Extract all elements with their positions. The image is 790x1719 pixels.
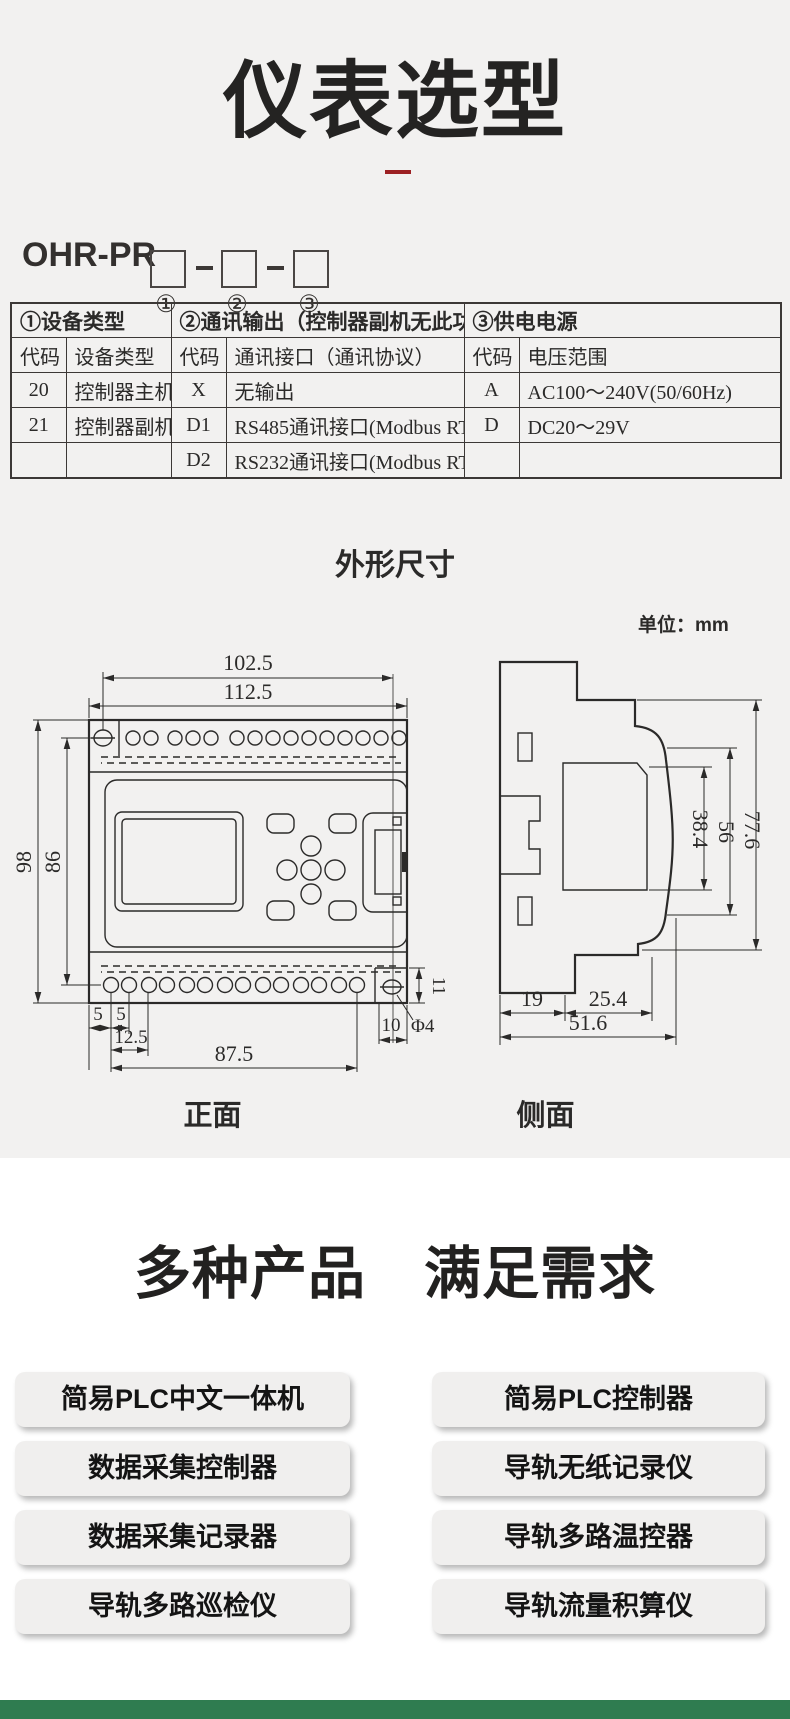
col-header: 代码	[11, 338, 66, 373]
rail-clip-top	[518, 733, 532, 761]
col-header: 代码	[171, 338, 226, 373]
dim-5a: 5	[93, 1004, 103, 1025]
cell-power-code: D	[464, 408, 519, 443]
table-row: D2 RS232通讯接口(Modbus RTU)	[11, 443, 781, 479]
group-title-device: ①设备类型	[11, 303, 171, 338]
product-button-data-acquisition-recorder[interactable]: 数据采集记录器	[15, 1510, 350, 1565]
side-view-label: 侧面	[483, 1092, 608, 1134]
cell-comm-type: RS232通讯接口(Modbus RTU)	[226, 443, 464, 479]
products-heading: 多种产品 满足需求	[0, 1228, 790, 1310]
cell-comm-code: D1	[171, 408, 226, 443]
dim-87-5: 87.5	[215, 1041, 254, 1066]
cell-device-type	[66, 443, 171, 479]
bottom-terminal-row	[104, 978, 365, 993]
side-view-drawing: 38.4 56 77.6 19 25.4 51.6	[450, 600, 770, 1075]
dim-86: 86	[40, 851, 65, 873]
din-rail-notch	[500, 796, 540, 874]
product-button-rail-multichannel-inspector[interactable]: 导轨多路巡检仪	[15, 1579, 350, 1634]
product-button-data-acquisition-controller[interactable]: 数据采集控制器	[15, 1441, 350, 1496]
cell-device-code: 20	[11, 373, 66, 408]
cell-power-range: AC100～240V(50/60Hz)	[519, 373, 781, 408]
dim-19: 19	[521, 986, 543, 1011]
product-button-plc-controller[interactable]: 简易PLC控制器	[432, 1372, 765, 1427]
selection-table: ①设备类型 ②通讯输出（控制器副机无此功能） ③供电电源 代码 设备类型 代码 …	[10, 302, 782, 479]
col-header: 通讯接口（通讯协议）	[226, 338, 464, 373]
cell-comm-code: X	[171, 373, 226, 408]
footer-bar	[0, 1700, 790, 1719]
group-title-comm: ②通讯输出（控制器副机无此功能）	[171, 303, 464, 338]
model-code-dash-2	[267, 266, 284, 270]
cell-power-code: A	[464, 373, 519, 408]
dimensions-heading: 外形尺寸	[0, 540, 790, 584]
dim-51-6: 51.6	[569, 1010, 608, 1035]
model-prefix: OHR-PR	[22, 236, 156, 275]
cell-device-type: 控制器主机	[66, 373, 171, 408]
product-button-rail-flow-totalizer[interactable]: 导轨流量积算仪	[432, 1579, 765, 1634]
product-button-plc-all-in-one[interactable]: 简易PLC中文一体机	[15, 1372, 350, 1427]
model-code-box-2	[221, 250, 257, 288]
col-header: 代码	[464, 338, 519, 373]
dim-phi4: Φ4	[411, 1016, 435, 1037]
dim-10: 10	[382, 1015, 401, 1036]
title-accent-dash	[385, 170, 411, 174]
table-group-header-row: ①设备类型 ②通讯输出（控制器副机无此功能） ③供电电源	[11, 303, 781, 338]
dim-98: 98	[15, 851, 36, 873]
dim-12-5: 12.5	[114, 1027, 147, 1048]
table-row: 20 控制器主机 X 无输出 A AC100～240V(50/60Hz)	[11, 373, 781, 408]
col-header: 设备类型	[66, 338, 171, 373]
cell-comm-code: D2	[171, 443, 226, 479]
model-code-box-1	[150, 250, 186, 288]
front-view-drawing: 102.5 112.5 98 86 5 5 12.5 87.5	[15, 600, 445, 1075]
dim-38-4: 38.4	[688, 810, 713, 849]
top-terminal-row	[126, 731, 406, 745]
group-title-power: ③供电电源	[464, 303, 781, 338]
product-column-left: 简易PLC中文一体机 数据采集控制器 数据采集记录器 导轨多路巡检仪	[15, 1372, 350, 1634]
cell-device-type: 控制器副机	[66, 408, 171, 443]
product-column-right: 简易PLC控制器 导轨无纸记录仪 导轨多路温控器 导轨流量积算仪	[432, 1372, 765, 1634]
cell-power-code	[464, 443, 519, 479]
dim-56: 56	[714, 821, 739, 843]
product-button-rail-paperless-recorder[interactable]: 导轨无纸记录仪	[432, 1441, 765, 1496]
dim-102-5: 102.5	[223, 650, 273, 675]
dim-112-5: 112.5	[224, 679, 273, 704]
dim-5b: 5	[116, 1004, 126, 1025]
dim-77-6: 77.6	[740, 811, 765, 850]
front-panel-outline	[105, 780, 407, 947]
dim-25-4: 25.4	[589, 986, 628, 1011]
product-button-rail-multichannel-temp-controller[interactable]: 导轨多路温控器	[432, 1510, 765, 1565]
front-dimensions: 102.5 112.5 98 86 5 5 12.5 87.5	[15, 650, 445, 1072]
dim-11: 11	[428, 977, 445, 995]
front-view-label: 正面	[150, 1092, 275, 1134]
rail-clip-bottom	[518, 897, 532, 925]
cell-comm-type: 无输出	[226, 373, 464, 408]
col-header: 电压范围	[519, 338, 781, 373]
cell-device-code: 21	[11, 408, 66, 443]
page: 仪表选型 OHR-PR ① ② ③ ①设备类型 ②通讯输出（控制器副机无此功能）…	[0, 0, 790, 1719]
housing-block	[563, 763, 647, 890]
keypad	[267, 814, 356, 920]
side-connector	[363, 813, 407, 912]
model-code-dash-1	[196, 266, 213, 270]
cell-power-range: DC20～29V	[519, 408, 781, 443]
cell-device-code	[11, 443, 66, 479]
cell-comm-type: RS485通讯接口(Modbus RTU)	[226, 408, 464, 443]
page-title: 仪表选型	[0, 34, 790, 155]
table-row: 21 控制器副机 D1 RS485通讯接口(Modbus RTU) D DC20…	[11, 408, 781, 443]
display-outline	[115, 812, 243, 911]
table-subheader-row: 代码 设备类型 代码 通讯接口（通讯协议） 代码 电压范围	[11, 338, 781, 373]
cell-power-range	[519, 443, 781, 479]
model-code-box-3	[293, 250, 329, 288]
